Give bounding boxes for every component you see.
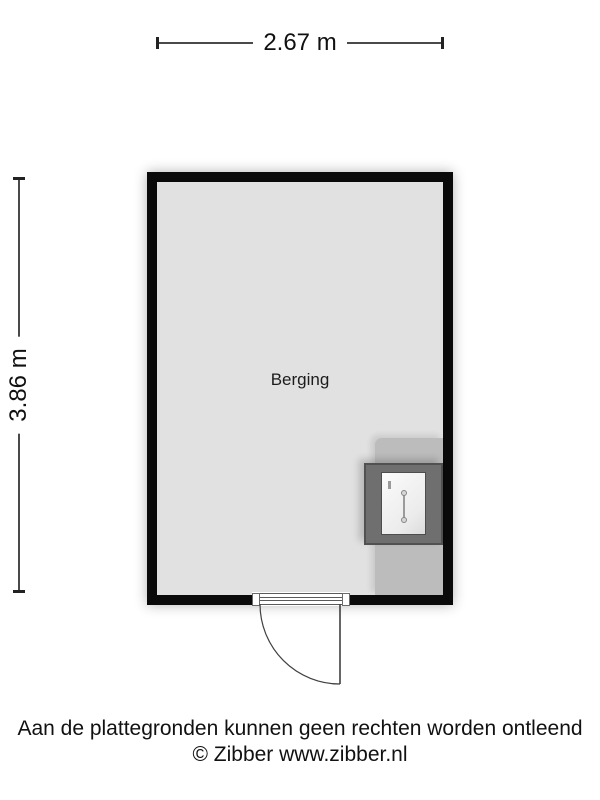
- door-jamb-right: [342, 593, 350, 606]
- door-threshold-line: [260, 593, 342, 594]
- floorplan-page: 2.67 m 3.86 m Berging Aan de plattegrond…: [0, 0, 600, 800]
- door-threshold-line: [260, 600, 342, 601]
- footer-copyright: © Zibber www.zibber.nl: [0, 742, 600, 768]
- door-jamb-left: [252, 593, 260, 606]
- boiler-panel: [381, 472, 426, 535]
- dimension-tick-top: [13, 177, 25, 180]
- boiler-knob-top: [401, 490, 407, 496]
- dimension-tick-bottom: [13, 590, 25, 593]
- boiler-icon: [364, 463, 443, 545]
- dimension-width: 2.67 m: [157, 28, 443, 58]
- dimension-height-label: 3.86 m: [4, 336, 34, 433]
- boiler-knob-bottom: [401, 517, 407, 523]
- dimension-width-label: 2.67 m: [253, 28, 346, 58]
- door-threshold-line: [260, 604, 342, 605]
- door-threshold-line: [260, 597, 342, 598]
- footer: Aan de plattegronden kunnen geen rechten…: [0, 716, 600, 768]
- boiler-vent-mark: [388, 481, 391, 489]
- footer-disclaimer: Aan de plattegronden kunnen geen rechten…: [0, 716, 600, 742]
- room-label: Berging: [157, 370, 443, 390]
